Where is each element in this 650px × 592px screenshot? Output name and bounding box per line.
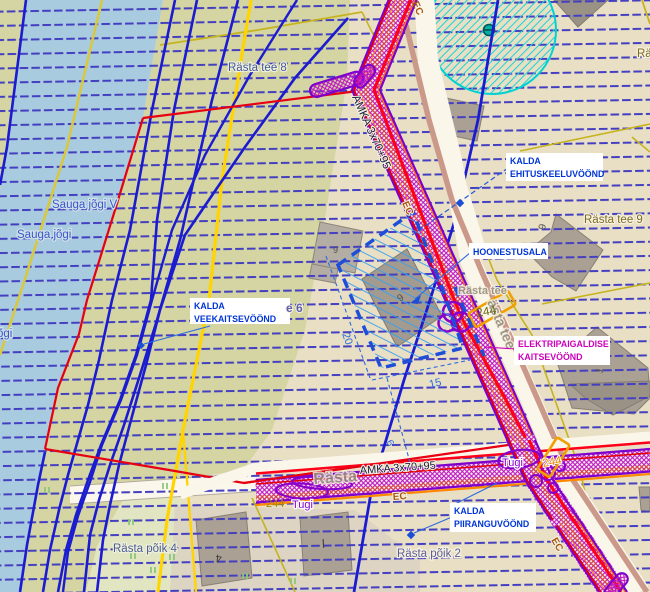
svg-text:Tugi: Tugi	[502, 457, 523, 469]
svg-text:KALDA: KALDA	[454, 506, 485, 516]
svg-text:Rästa tee: Rästa tee	[458, 285, 507, 297]
svg-text:Rästa: Rästa	[313, 468, 358, 488]
svg-text:Rästa tee 9: Rästa tee 9	[584, 214, 643, 226]
svg-text:EC: EC	[392, 491, 407, 503]
svg-text:244: 244	[266, 498, 284, 510]
svg-text:Rästa tee 8: Rästa tee 8	[228, 62, 287, 74]
svg-text:ELEKTRIPAIGALDISE: ELEKTRIPAIGALDISE	[518, 339, 609, 349]
svg-text:Sauga jõgi: Sauga jõgi	[17, 229, 71, 241]
svg-text:e 6: e 6	[286, 301, 303, 315]
svg-text:VEEKAITSEVÖÖND: VEEKAITSEVÖÖND	[194, 314, 276, 324]
svg-text:Sauga jõgi V: Sauga jõgi V	[52, 199, 118, 211]
svg-text:KALDA: KALDA	[194, 301, 225, 311]
svg-text:EHITUSKEELUVÖÖND: EHITUSKEELUVÖÖND	[510, 169, 604, 179]
svg-text:PIIRANGUVÖÖND: PIIRANGUVÖÖND	[454, 519, 529, 529]
svg-text:Rästa põik 2: Rästa põik 2	[397, 548, 461, 560]
svg-text:õgi: õgi	[0, 328, 12, 340]
svg-text:Rä: Rä	[637, 48, 650, 60]
svg-text:Rästa põik 4: Rästa põik 4	[113, 543, 178, 555]
svg-text:KAITSEVÖÖND: KAITSEVÖÖND	[518, 352, 583, 362]
svg-text:4: 4	[215, 551, 222, 563]
svg-text:Tugi: Tugi	[292, 499, 313, 511]
svg-text:HOONESTUSALA: HOONESTUSALA	[473, 247, 547, 257]
svg-text:9: 9	[333, 245, 338, 255]
svg-text:KALDA: KALDA	[510, 156, 541, 166]
